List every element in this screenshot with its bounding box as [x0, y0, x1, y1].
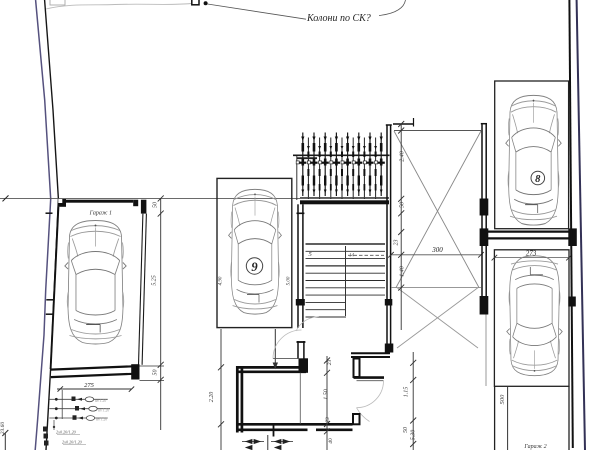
svg-text:50: 50 [153, 202, 159, 208]
svg-text:8: 8 [535, 174, 541, 185]
svg-text:2.20: 2.20 [209, 392, 215, 403]
svg-text:1.50: 1.50 [324, 389, 330, 400]
svg-text:4.90: 4.90 [219, 276, 224, 285]
svg-text:Колони по СК?: Колони по СК? [306, 13, 371, 24]
svg-text:2x0.20/1.20: 2x0.20/1.20 [62, 440, 83, 445]
svg-text:50: 50 [400, 202, 406, 208]
svg-text:5.25: 5.25 [152, 275, 158, 286]
svg-text:2x0.20/1.20: 2x0.20/1.20 [56, 430, 77, 435]
svg-text:Гараж 2: Гараж 2 [523, 444, 546, 450]
svg-text:40: 40 [327, 438, 334, 444]
svg-text:275: 275 [84, 382, 95, 389]
svg-text:вп 1.20: вп 1.20 [98, 408, 109, 412]
svg-text:1.40: 1.40 [399, 266, 406, 277]
svg-text:500: 500 [499, 394, 506, 405]
svg-text:вп 1.20: вп 1.20 [96, 418, 107, 422]
svg-text:Гараж 1: Гараж 1 [89, 211, 112, 217]
svg-text:23.60: 23.60 [0, 422, 6, 435]
svg-text:300: 300 [431, 246, 443, 254]
svg-text:9: 9 [251, 260, 258, 274]
svg-text:14: 14 [349, 254, 355, 259]
svg-text:50: 50 [153, 370, 159, 376]
svg-text:23: 23 [327, 360, 333, 366]
svg-text:вп 1.20: вп 1.20 [95, 399, 106, 403]
svg-text:5.30: 5.30 [411, 430, 417, 441]
svg-text:2.40: 2.40 [399, 151, 406, 162]
svg-text:1.15: 1.15 [404, 387, 410, 398]
svg-text:23: 23 [394, 240, 400, 246]
svg-text:23: 23 [325, 417, 331, 423]
svg-text:5.00: 5.00 [287, 276, 292, 285]
svg-text:50: 50 [403, 427, 409, 433]
